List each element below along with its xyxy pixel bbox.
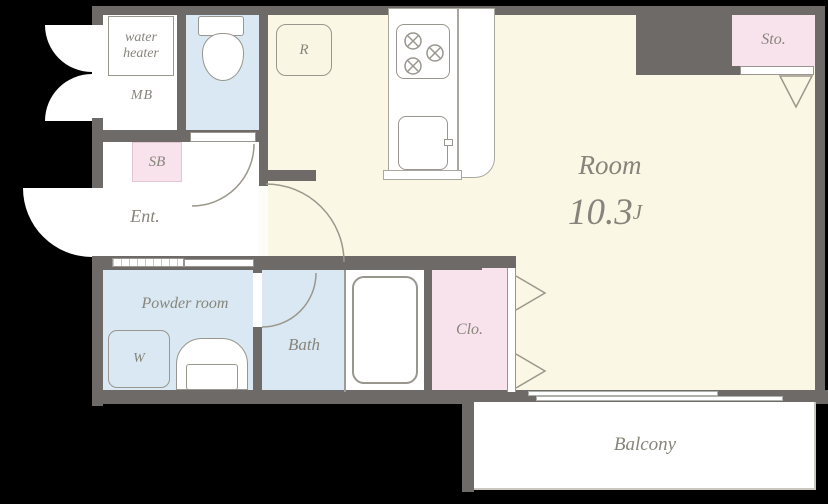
- mainroom-door-arc: [266, 184, 344, 262]
- entrance-door-swing: [23, 188, 92, 257]
- main-room-size-unit: J: [633, 200, 642, 225]
- floorplan: water heater MB R Sto. SB Ent. Room 10.3…: [0, 0, 828, 504]
- bath-door-arc: [262, 273, 316, 327]
- washer-label: W: [108, 330, 170, 388]
- main-room-label: Room: [545, 148, 675, 182]
- main-room-size: 10.3J: [525, 188, 685, 236]
- powder-room-label: Powder room: [133, 278, 237, 330]
- closet-label: Clo.: [432, 268, 507, 392]
- refrigerator-label: R: [276, 24, 332, 76]
- main-room-size-value: 10.3: [568, 191, 633, 234]
- meterbox-door-swing-top: [45, 25, 92, 72]
- balcony-label: Balcony: [474, 402, 816, 488]
- stove-burners-icon: [405, 33, 443, 74]
- meterbox-door-swing-bottom: [45, 74, 92, 121]
- water-heater-label: water heater: [110, 18, 172, 74]
- meter-box-label: MB: [108, 84, 176, 108]
- storage-label: Sto.: [732, 13, 815, 67]
- closet-door-marker-top: [516, 276, 545, 310]
- closet-door-marker-bottom: [516, 354, 545, 388]
- toilet-door-arc: [192, 144, 254, 206]
- entrance-label: Ent.: [108, 202, 182, 230]
- bath-label: Bath: [268, 332, 340, 358]
- storage-door-marker: [780, 76, 812, 107]
- shoe-box-label: SB: [132, 142, 182, 182]
